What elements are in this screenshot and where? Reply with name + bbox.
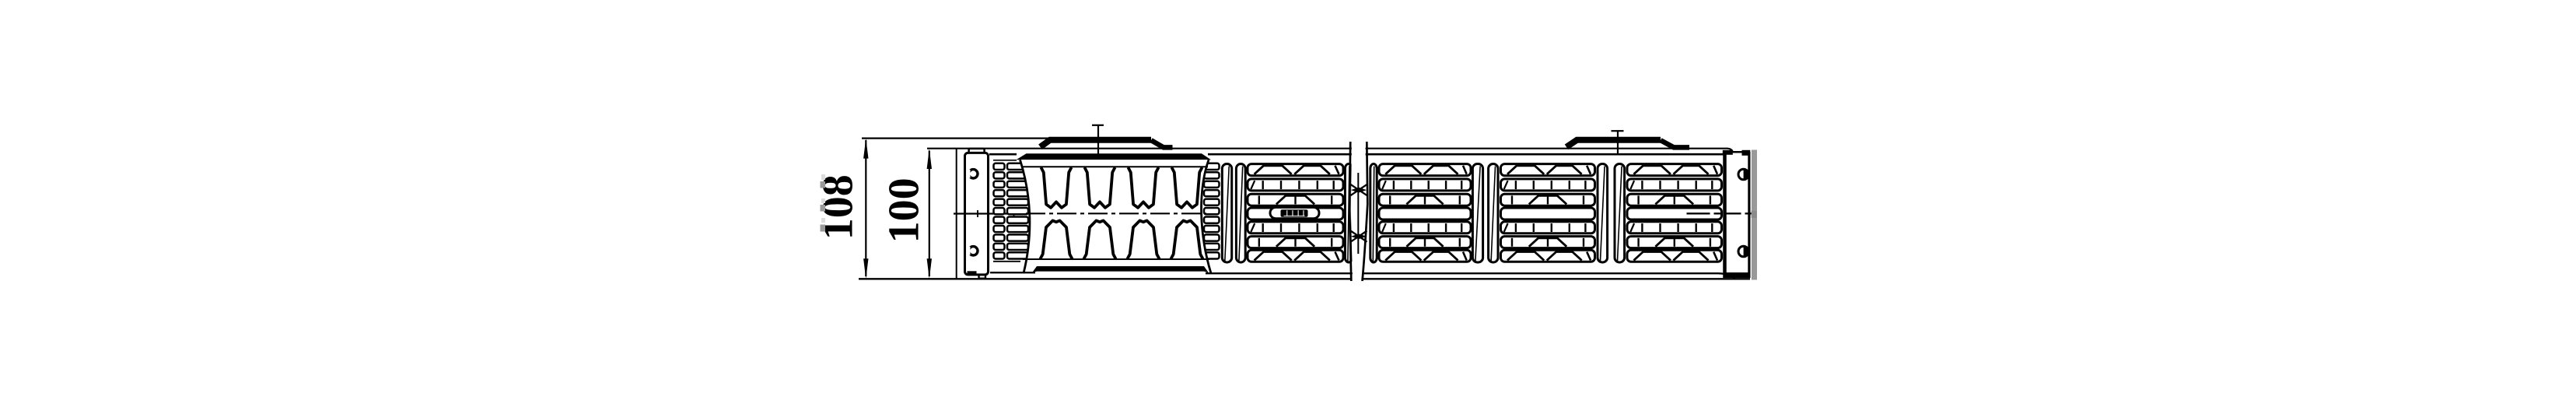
svg-text:100: 100	[880, 177, 928, 243]
